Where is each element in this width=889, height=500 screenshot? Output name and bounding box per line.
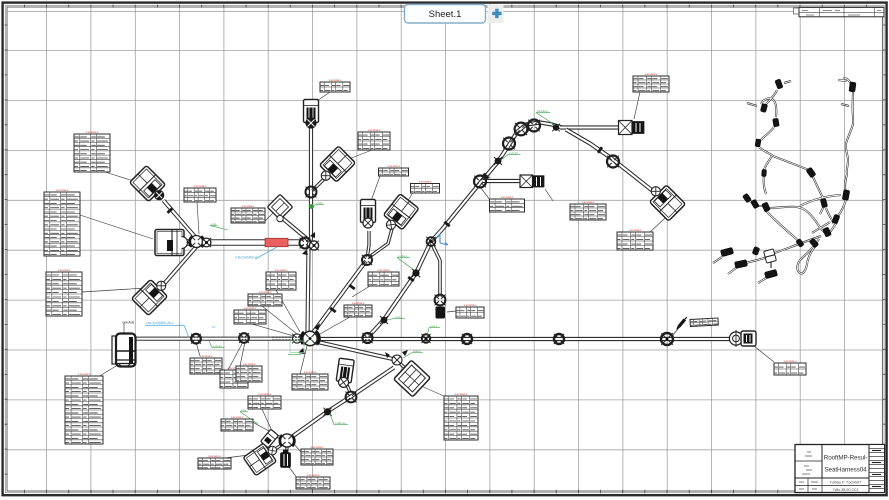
svg-text:xAx-3xxAMB0-Ax-x: xAx-3xxAMB0-Ax-x <box>146 321 174 325</box>
svg-text:x-xx xxxx-x: x-xx xxxx-x <box>56 188 69 192</box>
svg-text:x-xx xxxx-x: x-xx xxxx-x <box>329 78 342 82</box>
svg-text:x.xx: x.xx <box>211 222 217 226</box>
svg-text:Tx0aa t^ 7oc9007: Tx0aa t^ 7oc9007 <box>830 480 862 485</box>
svg-text:xA.13x.x: xA.13x.x <box>537 109 548 113</box>
svg-text:x-xx xxxx-x: x-xx xxxx-x <box>275 268 288 272</box>
svg-text:x-xx xxxx-x: x-xx xxxx-x <box>307 473 320 477</box>
svg-text:x-xx xxxx-x: x-xx xxxx-x <box>645 72 658 76</box>
svg-text:x-xx xxxx-x: x-xx xxxx-x <box>242 204 255 208</box>
svg-text:x-xx xxxx-x: x-xx xxxx-x <box>784 359 797 363</box>
svg-text:x-xx xxxx-x: x-xx xxxx-x <box>208 454 221 458</box>
svg-text:x-xx xxxx-x: x-xx xxxx-x <box>200 354 213 358</box>
svg-text:x.xAx.x: x.xAx.x <box>398 254 408 258</box>
svg-text:x.xx.x: x.xx.x <box>395 315 403 319</box>
svg-text:x.xx: x.xx <box>241 408 247 412</box>
svg-text:x-xx xxxx-x: x-xx xxxx-x <box>368 128 381 132</box>
svg-text:x.xAx.xx: x.xAx.xx <box>335 421 346 425</box>
svg-text:x-xx xxxx-x: x-xx xxxx-x <box>352 301 365 305</box>
svg-text:x-xx xxxx-x: x-xx xxxx-x <box>258 392 271 396</box>
svg-text:Sheet.1: Sheet.1 <box>429 9 462 20</box>
svg-text:x.Ax.x: x.Ax.x <box>413 349 421 353</box>
svg-text:x.xx.xx: x.xx.xx <box>213 344 222 348</box>
svg-text:7xBv-3B.0C.CC3: 7xBv-3B.0C.CC3 <box>833 488 859 492</box>
svg-text:RooftMP-Resul-: RooftMP-Resul- <box>824 455 867 462</box>
svg-text:x-xx xxxx-x: x-xx xxxx-x <box>377 268 390 272</box>
svg-text:x-xx xxxx-x: x-xx xxxx-x <box>244 306 257 310</box>
svg-text:x-xx xxxx-x: x-xx xxxx-x <box>629 228 642 232</box>
svg-text:x.xx.x: x.xx.x <box>430 324 438 328</box>
svg-text:x-xx xxxx-x: x-xx xxxx-x <box>231 415 244 419</box>
svg-text:x-xx xxxx-x: x-xx xxxx-x <box>243 362 256 366</box>
svg-text:x-xx xxxx-x: x-xx xxxx-x <box>259 290 272 294</box>
svg-text:x-xx xxxx-x: x-xx xxxx-x <box>387 164 400 168</box>
svg-text:x-xx xxxx-x: x-xx xxxx-x <box>78 372 91 376</box>
svg-text:x-xx xxxx-x: x-xx xxxx-x <box>58 268 71 272</box>
svg-text:x.xx.xx: x.xx.xx <box>509 151 518 155</box>
svg-text:x-xx xxxx-x: x-xx xxxx-x <box>501 195 514 199</box>
svg-text:x-xx xxxx-x: x-xx xxxx-x <box>464 303 477 307</box>
svg-text:SeatHarness04: SeatHarness04 <box>824 467 867 474</box>
svg-text:x-xx xxxx-x: x-xx xxxx-x <box>304 370 317 374</box>
svg-text:x-xx xxxx-x: x-xx xxxx-x <box>419 180 432 184</box>
svg-text:x-xx xxxx-x: x-xx xxxx-x <box>86 130 99 134</box>
svg-text:x-xx xxxx-x: x-xx xxxx-x <box>311 445 324 449</box>
svg-text:xxAxAxB: xxAxAxB <box>122 321 134 325</box>
svg-text:0-Bx2xAMB0-A: 0-Bx2xAMB0-A <box>235 256 258 260</box>
svg-text:xx: xx <box>212 325 216 329</box>
svg-text:x-xx xxxx-x: x-xx xxxx-x <box>582 200 595 204</box>
svg-text:x-xx xxxx-x: x-xx xxxx-x <box>194 184 207 188</box>
svg-text:x.xxx: x.xxx <box>316 201 323 205</box>
svg-text:x-xx xxxx-x: x-xx xxxx-x <box>455 392 468 396</box>
